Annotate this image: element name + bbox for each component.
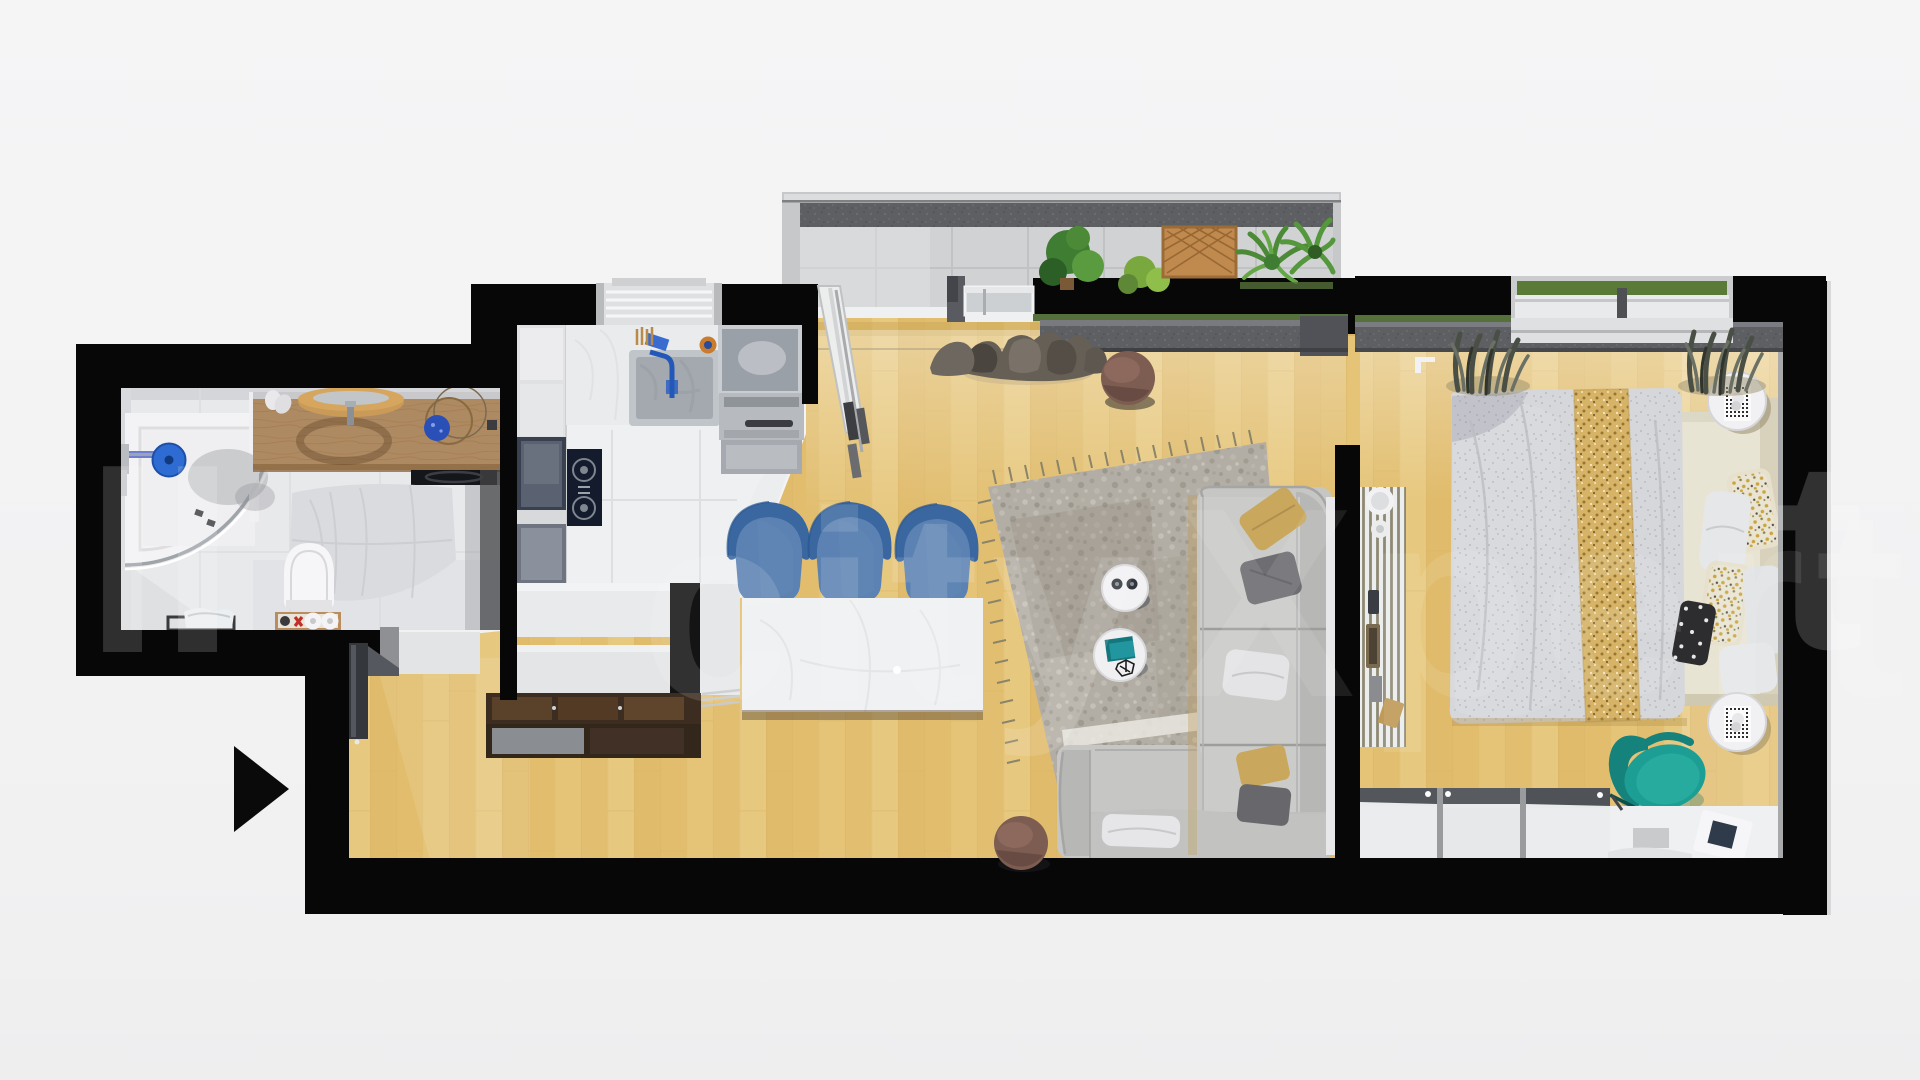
svg-text:t: t [1774,405,1864,706]
svg-text:city: city [640,457,1153,759]
svg-text:II: II [85,409,235,710]
